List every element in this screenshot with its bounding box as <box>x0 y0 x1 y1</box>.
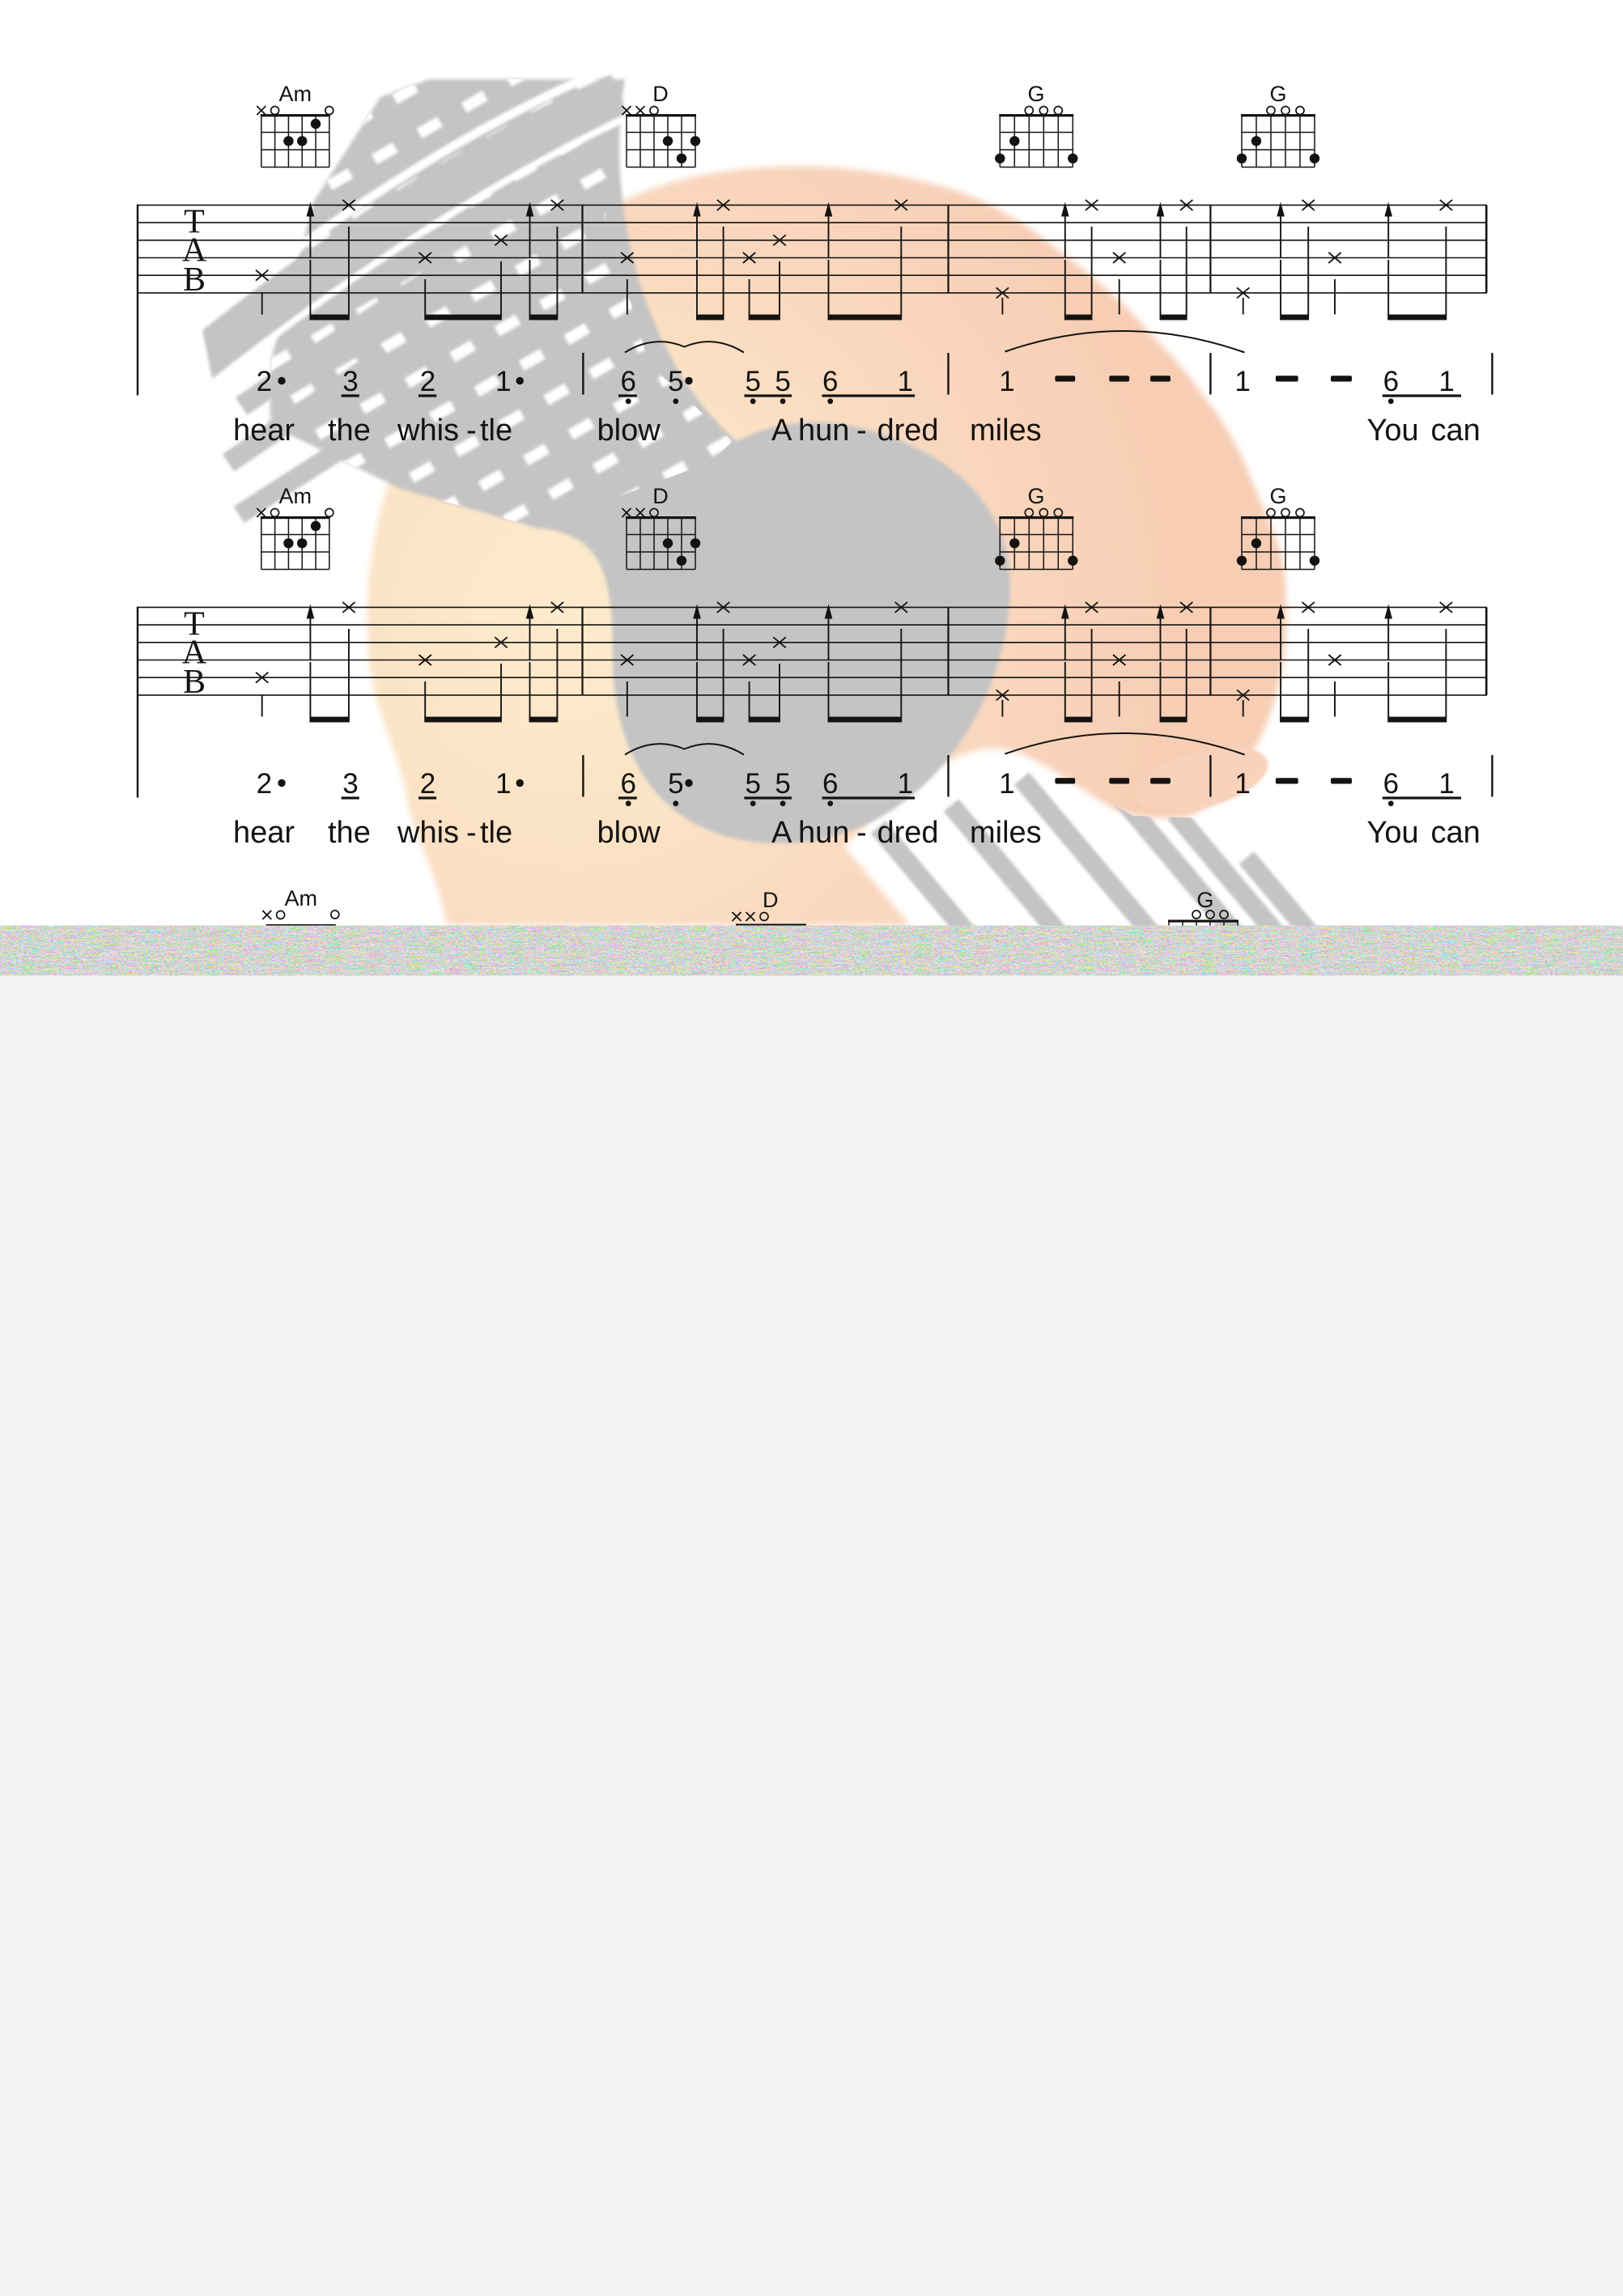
svg-text:Am: Am <box>285 886 318 910</box>
svg-text:D: D <box>763 888 779 912</box>
svg-text:G: G <box>1196 888 1213 912</box>
